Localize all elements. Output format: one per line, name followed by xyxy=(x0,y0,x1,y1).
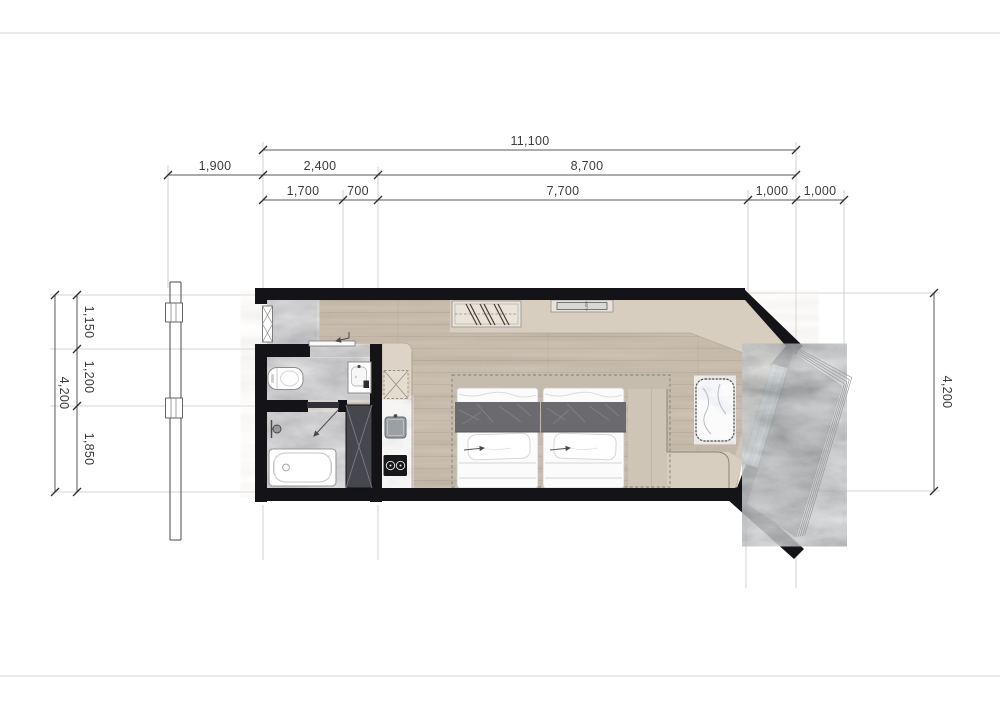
dim-1700: 1,700 xyxy=(287,184,320,198)
bathtub xyxy=(269,449,336,486)
open-closet xyxy=(452,301,521,327)
dim-1150: 1,150 xyxy=(82,306,96,339)
dim-8700: 8,700 xyxy=(571,159,604,173)
entry-marble-floor xyxy=(270,300,317,345)
dim-right-total: 4,200 xyxy=(940,376,954,409)
toilet xyxy=(268,368,303,390)
dim-2400: 2,400 xyxy=(304,159,337,173)
wall-top xyxy=(255,288,745,300)
corridor-wall-section xyxy=(166,282,183,540)
floor-plan-drawing: 11,100 1,900 2,400 8,700 1,700 700 7,700… xyxy=(0,0,1000,707)
bedside-runner xyxy=(628,377,667,488)
wall-bottom xyxy=(255,488,738,501)
dim-left-total: 4,200 xyxy=(57,377,71,410)
bed-twin-right xyxy=(541,388,626,488)
wall-left-stub xyxy=(255,288,267,304)
corridor-window-symbol xyxy=(166,303,183,418)
vanity-sink xyxy=(348,362,371,393)
dim-1900: 1,900 xyxy=(199,159,232,173)
cooktop xyxy=(384,455,408,476)
tv-label: 55TV xyxy=(584,301,589,311)
refrigerator-symbol xyxy=(384,371,408,399)
dim-1000-a: 1,000 xyxy=(756,184,789,198)
dim-1200: 1,200 xyxy=(82,361,96,394)
wall-left xyxy=(255,344,267,502)
accent-floor-corner xyxy=(667,452,743,488)
dim-700: 700 xyxy=(347,184,369,198)
kitchen-sink xyxy=(385,414,406,438)
bed-twin-left xyxy=(455,388,540,488)
tv-console: 55TV xyxy=(551,300,613,312)
wall-bath-top xyxy=(255,344,310,357)
marble-side-table xyxy=(696,379,734,441)
dim-1000-b: 1,000 xyxy=(804,184,837,198)
wall-bath-mid xyxy=(255,400,308,412)
floor-plan-page: 11,100 1,900 2,400 8,700 1,700 700 7,700… xyxy=(0,0,1000,707)
wardrobe xyxy=(346,405,372,488)
dim-1850: 1,850 xyxy=(82,433,96,466)
dim-top-total: 11,100 xyxy=(510,134,549,148)
dim-7700: 7,700 xyxy=(547,184,580,198)
bath-sliding-door xyxy=(309,341,355,346)
entry-door-symbol xyxy=(263,306,273,342)
